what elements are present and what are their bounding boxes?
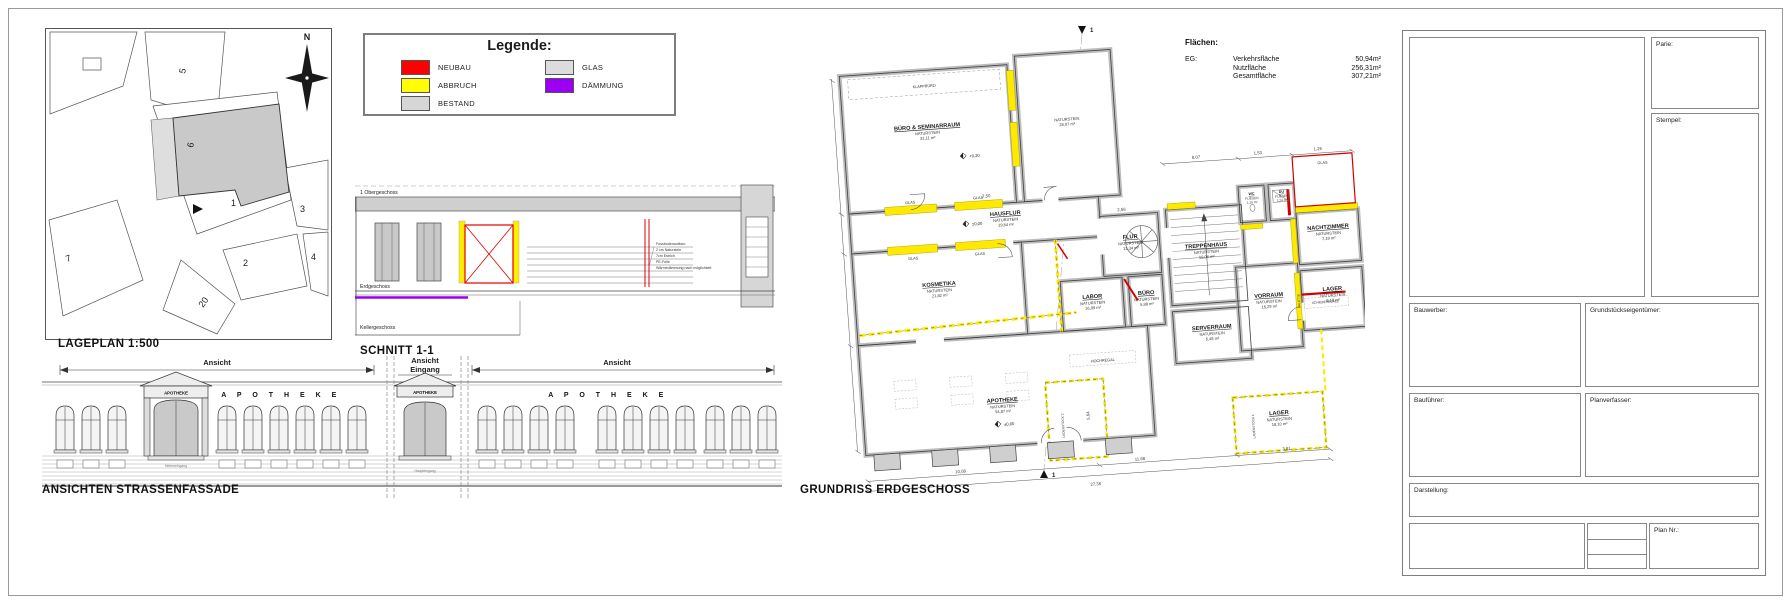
- svg-text:+0,20: +0,20: [969, 153, 981, 159]
- baufuehrer-label: Bauführer:: [1414, 397, 1580, 404]
- area-row-label: Verkehrsfläche: [1233, 56, 1279, 65]
- svg-text:1,53: 1,53: [1253, 150, 1262, 156]
- svg-text:±0,00: ±0,00: [972, 221, 983, 227]
- apotheke-lettering-right: A P O T H E K E: [548, 392, 668, 399]
- apotheke-lettering-left: A P O T H E K E: [221, 392, 341, 399]
- svg-text:1: 1: [1090, 28, 1094, 34]
- view-label-left: Ansicht: [203, 358, 231, 367]
- svg-text:11,88: 11,88: [1135, 456, 1146, 462]
- svg-text:1,26: 1,26: [1313, 146, 1322, 152]
- grundriss-title: GRUNDRISS ERDGESCHOSS: [800, 484, 970, 496]
- svg-text:Fussbodenaufbau:: Fussbodenaufbau:: [656, 242, 686, 246]
- facade-elevation: Ansicht Ansicht Eingang Ansicht: [42, 356, 782, 498]
- darstellung-label: Darstellung:: [1414, 487, 1758, 494]
- legend-swatch-abbruch: [401, 78, 430, 93]
- svg-text:Wärmedämmung nach möglichkeit: Wärmedämmung nach möglichkeit: [656, 266, 711, 270]
- parie-label: Parie:: [1656, 41, 1758, 48]
- floor-buildup-note: Fussbodenaufbau: 2 cm Naturstein 7cm Est…: [649, 242, 711, 270]
- floor-slab: [355, 197, 775, 211]
- abbruch-strip: [459, 221, 465, 283]
- plannr-label: Plan Nr.:: [1654, 527, 1758, 534]
- legend-item-glas: GLAS: [545, 60, 603, 75]
- titleblock-eigentuemer-cell: Grundstückseigentümer:: [1585, 303, 1759, 387]
- ladenstock1-label: LADENSTOCK 1: [1251, 414, 1257, 439]
- floor-plan-body: 10,08 11,88 3,81 27,36 8,07 1,53 1,26 7,…: [829, 33, 1365, 498]
- section-doors: [375, 223, 441, 281]
- schnitt-title: SCHNITT 1-1: [360, 345, 434, 357]
- legend-item-daemmung: DÄMMUNG: [545, 78, 624, 93]
- svg-text:3,81: 3,81: [1282, 446, 1291, 452]
- abbruch-strip: [513, 221, 519, 283]
- portal-middle: APOTHEKE Haupteingang: [394, 373, 456, 473]
- area-row-value: 256,31m²: [1351, 65, 1381, 74]
- legend-swatch-glas: [545, 60, 574, 75]
- legend-swatch-neubau: [401, 60, 430, 75]
- titleblock-stempel-cell: Stempel:: [1651, 113, 1759, 297]
- glas-label: GLAS: [1317, 160, 1328, 165]
- area-table-title: Flächen:: [1185, 38, 1381, 47]
- titleblock-plannr-cell: Plan Nr.:: [1649, 523, 1759, 569]
- area-table: Flächen: EG: Verkehrsfläche 50,94m² Nutz…: [1185, 38, 1381, 82]
- svg-text:PE-Folie: PE-Folie: [656, 260, 670, 264]
- titleblock-revision-cell: [1587, 523, 1647, 569]
- titleblock-bottom-left-cell: [1409, 523, 1585, 569]
- legend-item-neubau: NEUBAU: [401, 60, 471, 75]
- eigentuemer-label: Grundstückseigentümer:: [1590, 307, 1758, 314]
- stempel-label: Stempel:: [1656, 117, 1758, 124]
- titleblock-planverfasser-cell: Planverfasser:: [1585, 393, 1759, 477]
- titleblock-plan-preview-cell: [1409, 37, 1645, 297]
- svg-text:2 cm Naturstein: 2 cm Naturstein: [656, 248, 681, 252]
- parcel-number: 3: [300, 204, 305, 214]
- area-row: Verkehrsfläche 50,94m²: [1233, 56, 1381, 65]
- svg-text:7,50: 7,50: [982, 193, 991, 199]
- neubau-element: [465, 225, 513, 283]
- svg-text:±0,00: ±0,00: [1004, 421, 1015, 427]
- view-label-mid2: Eingang: [410, 365, 440, 374]
- parcel-number: 2: [243, 258, 248, 268]
- section-stairs: [527, 247, 693, 283]
- area-row: Nutzfläche 256,31m²: [1233, 65, 1381, 74]
- svg-text:27,36: 27,36: [1090, 481, 1102, 487]
- parcel-number: 1: [231, 198, 236, 208]
- floor-plan: 1 1: [790, 20, 1365, 498]
- portal-left: APOTHEKE Nebeneingang: [140, 372, 212, 468]
- glas-label: GLAS: [908, 256, 919, 261]
- entrance-note-mid: Haupteingang: [414, 469, 435, 473]
- view-annotations: Ansicht Ansicht Eingang Ansicht: [60, 356, 774, 375]
- titleblock-bauwerber-cell: Bauwerber:: [1409, 303, 1581, 387]
- level-label-eg: Erdgeschoss: [360, 284, 390, 290]
- north-label: N: [304, 32, 311, 42]
- parcel-number: 4: [311, 252, 316, 262]
- area-row-value: 307,21m²: [1351, 73, 1381, 82]
- svg-text:8,07: 8,07: [1192, 154, 1201, 160]
- svg-text:5,64: 5,64: [1085, 411, 1091, 420]
- area-row-label: Gesamtfläche: [1233, 73, 1276, 82]
- titleblock-darstellung-cell: Darstellung:: [1409, 483, 1759, 517]
- entrance-note-left: Nebeneingang: [165, 464, 187, 468]
- level-label-kg: Kellergeschoss: [360, 325, 396, 331]
- plan-sheet: N 5 6 1 3 7 2 4 20 Legende: NEUBAU ABBRU…: [0, 0, 1791, 604]
- section-right-window: [746, 217, 768, 277]
- titleblock-parie-cell: Parie:: [1651, 37, 1759, 109]
- lageplan-title: LAGEPLAN 1:500: [58, 338, 159, 350]
- legend-label: DÄMMUNG: [582, 81, 624, 90]
- svg-text:7cm Estrich: 7cm Estrich: [656, 254, 675, 258]
- ansichten-title: ANSICHTEN STRASSENFASSADE: [42, 484, 239, 496]
- glas-label: GLAS: [905, 200, 916, 205]
- legend-item-abbruch: ABBRUCH: [401, 78, 477, 93]
- area-level-label: EG:: [1185, 56, 1233, 82]
- title-block: Parie: Stempel: Bauwerber: Grundstücksei…: [1402, 30, 1766, 576]
- svg-text:10,08: 10,08: [955, 468, 967, 474]
- legend-swatch-daemmung: [545, 78, 574, 93]
- portal-sign: APOTHEKE: [164, 391, 188, 396]
- site-plan: N 5 6 1 3 7 2 4 20: [45, 28, 332, 340]
- legend-label: NEUBAU: [438, 63, 471, 72]
- legend-label: GLAS: [582, 63, 603, 72]
- area-row-label: Nutzfläche: [1233, 65, 1266, 74]
- legend-label: BESTAND: [438, 99, 475, 108]
- svg-text:2,56: 2,56: [1117, 207, 1126, 213]
- bauwerber-label: Bauwerber:: [1414, 307, 1580, 314]
- legend: Legende: NEUBAU ABBRUCH BESTAND GLAS DÄM…: [363, 33, 676, 116]
- legend-title: Legende:: [365, 38, 674, 54]
- titleblock-baufuehrer-cell: Bauführer:: [1409, 393, 1581, 477]
- building-footprint: [173, 104, 289, 206]
- room-label-lager-bottom: LAGERNATURSTEIN18,10 m²: [1266, 410, 1292, 428]
- legend-item-bestand: BESTAND: [401, 96, 475, 111]
- legend-swatch-bestand: [401, 96, 430, 111]
- level-label-og: 1 Obergeschoss: [360, 190, 398, 196]
- section-drawing: 1 Obergeschoss Fussbodenaufbau:: [355, 183, 775, 343]
- area-row: Gesamtfläche 307,21m²: [1233, 73, 1381, 82]
- planverfasser-label: Planverfasser:: [1590, 397, 1758, 404]
- view-label-mid1: Ansicht: [411, 356, 439, 365]
- glas-label: GLAS: [975, 252, 986, 257]
- legend-label: ABBRUCH: [438, 81, 477, 90]
- area-row-value: 50,94m²: [1355, 56, 1381, 65]
- glas-label: GLAS: [973, 196, 984, 201]
- view-label-right: Ansicht: [603, 358, 631, 367]
- portal-sign: APOTHEKE: [413, 390, 437, 395]
